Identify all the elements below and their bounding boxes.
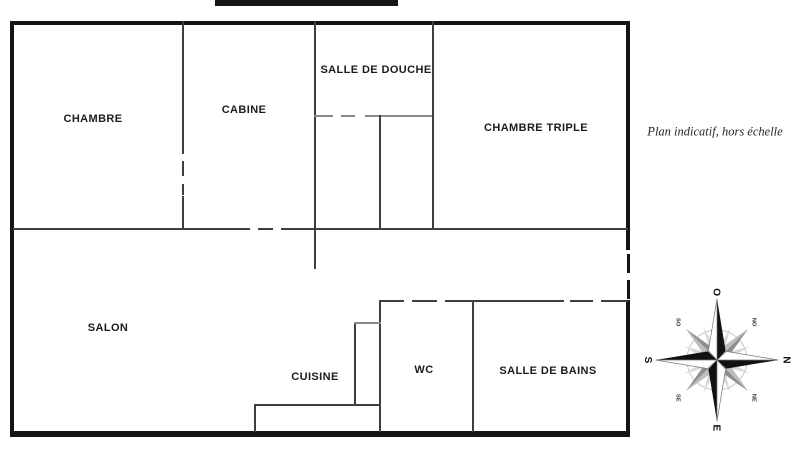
wall-outer-right-dash xyxy=(627,280,630,299)
wall-chambre-triple-west xyxy=(432,21,434,230)
door-dash-chambre xyxy=(182,161,184,176)
room-label-salle-de-bains: SALLE DE BAINS xyxy=(499,365,596,377)
wall-cuisine-counter xyxy=(254,404,256,432)
top-balcony-bar xyxy=(215,0,398,6)
wall-outer-right-dash xyxy=(627,254,630,273)
wall-douche-south xyxy=(365,115,434,117)
wall-outer-right-upper xyxy=(626,21,630,250)
door-dash-middle xyxy=(258,228,273,230)
room-label-chambre: CHAMBRE xyxy=(63,113,122,125)
wall-outer-bottom xyxy=(10,431,630,437)
wall-middle xyxy=(281,228,628,230)
floor-plan: CHAMBRE CABINE SALLE DE DOUCHE CHAMBRE T… xyxy=(0,0,800,450)
scale-note: Plan indicatif, hors échelle xyxy=(647,125,782,140)
compass-label-e: E xyxy=(710,425,721,432)
room-label-chambre-triple: CHAMBRE TRIPLE xyxy=(484,122,588,134)
wall-chambre-cabine xyxy=(182,196,184,230)
door-dash-douche xyxy=(341,115,355,117)
compass-label-s: S xyxy=(642,357,653,364)
compass-label-no: NO xyxy=(751,318,757,327)
room-label-cabine: CABINE xyxy=(222,104,267,116)
room-label-salon: SALON xyxy=(88,322,129,334)
wall-cuisine-step-top xyxy=(354,322,381,324)
wall-outer-top xyxy=(10,21,630,25)
room-label-cuisine: CUISINE xyxy=(291,371,338,383)
wall-hall-west xyxy=(379,115,381,230)
compass-label-so: SO xyxy=(674,318,680,327)
compass-label-n: N xyxy=(780,356,791,363)
compass-label-ne: NE xyxy=(751,394,757,402)
door-dash-chambre xyxy=(182,184,184,195)
wall-wc-west xyxy=(379,300,381,432)
door-dash-sdb xyxy=(570,300,593,302)
wall-cuisine-step xyxy=(354,322,356,406)
wall-outer-right-lower xyxy=(626,300,630,437)
room-label-wc: WC xyxy=(414,364,433,376)
wall-sdb-north xyxy=(601,300,628,302)
door-dash-wc xyxy=(412,300,437,302)
compass-rose-icon: N E S O NE SE SO NO xyxy=(642,276,792,444)
wall-wc-sdb xyxy=(472,300,474,432)
wall-cuisine-counter xyxy=(254,404,381,406)
room-label-salle-de-douche: SALLE DE DOUCHE xyxy=(320,64,431,76)
compass-label-se: SE xyxy=(674,394,680,402)
wall-middle xyxy=(13,228,250,230)
wall-chambre-cabine xyxy=(182,21,184,154)
wall-cabine-douche xyxy=(314,21,316,269)
wall-sdb-north xyxy=(445,300,564,302)
wall-douche-south xyxy=(314,115,333,117)
compass-label-o: O xyxy=(710,288,721,296)
wall-wc-north xyxy=(379,300,404,302)
